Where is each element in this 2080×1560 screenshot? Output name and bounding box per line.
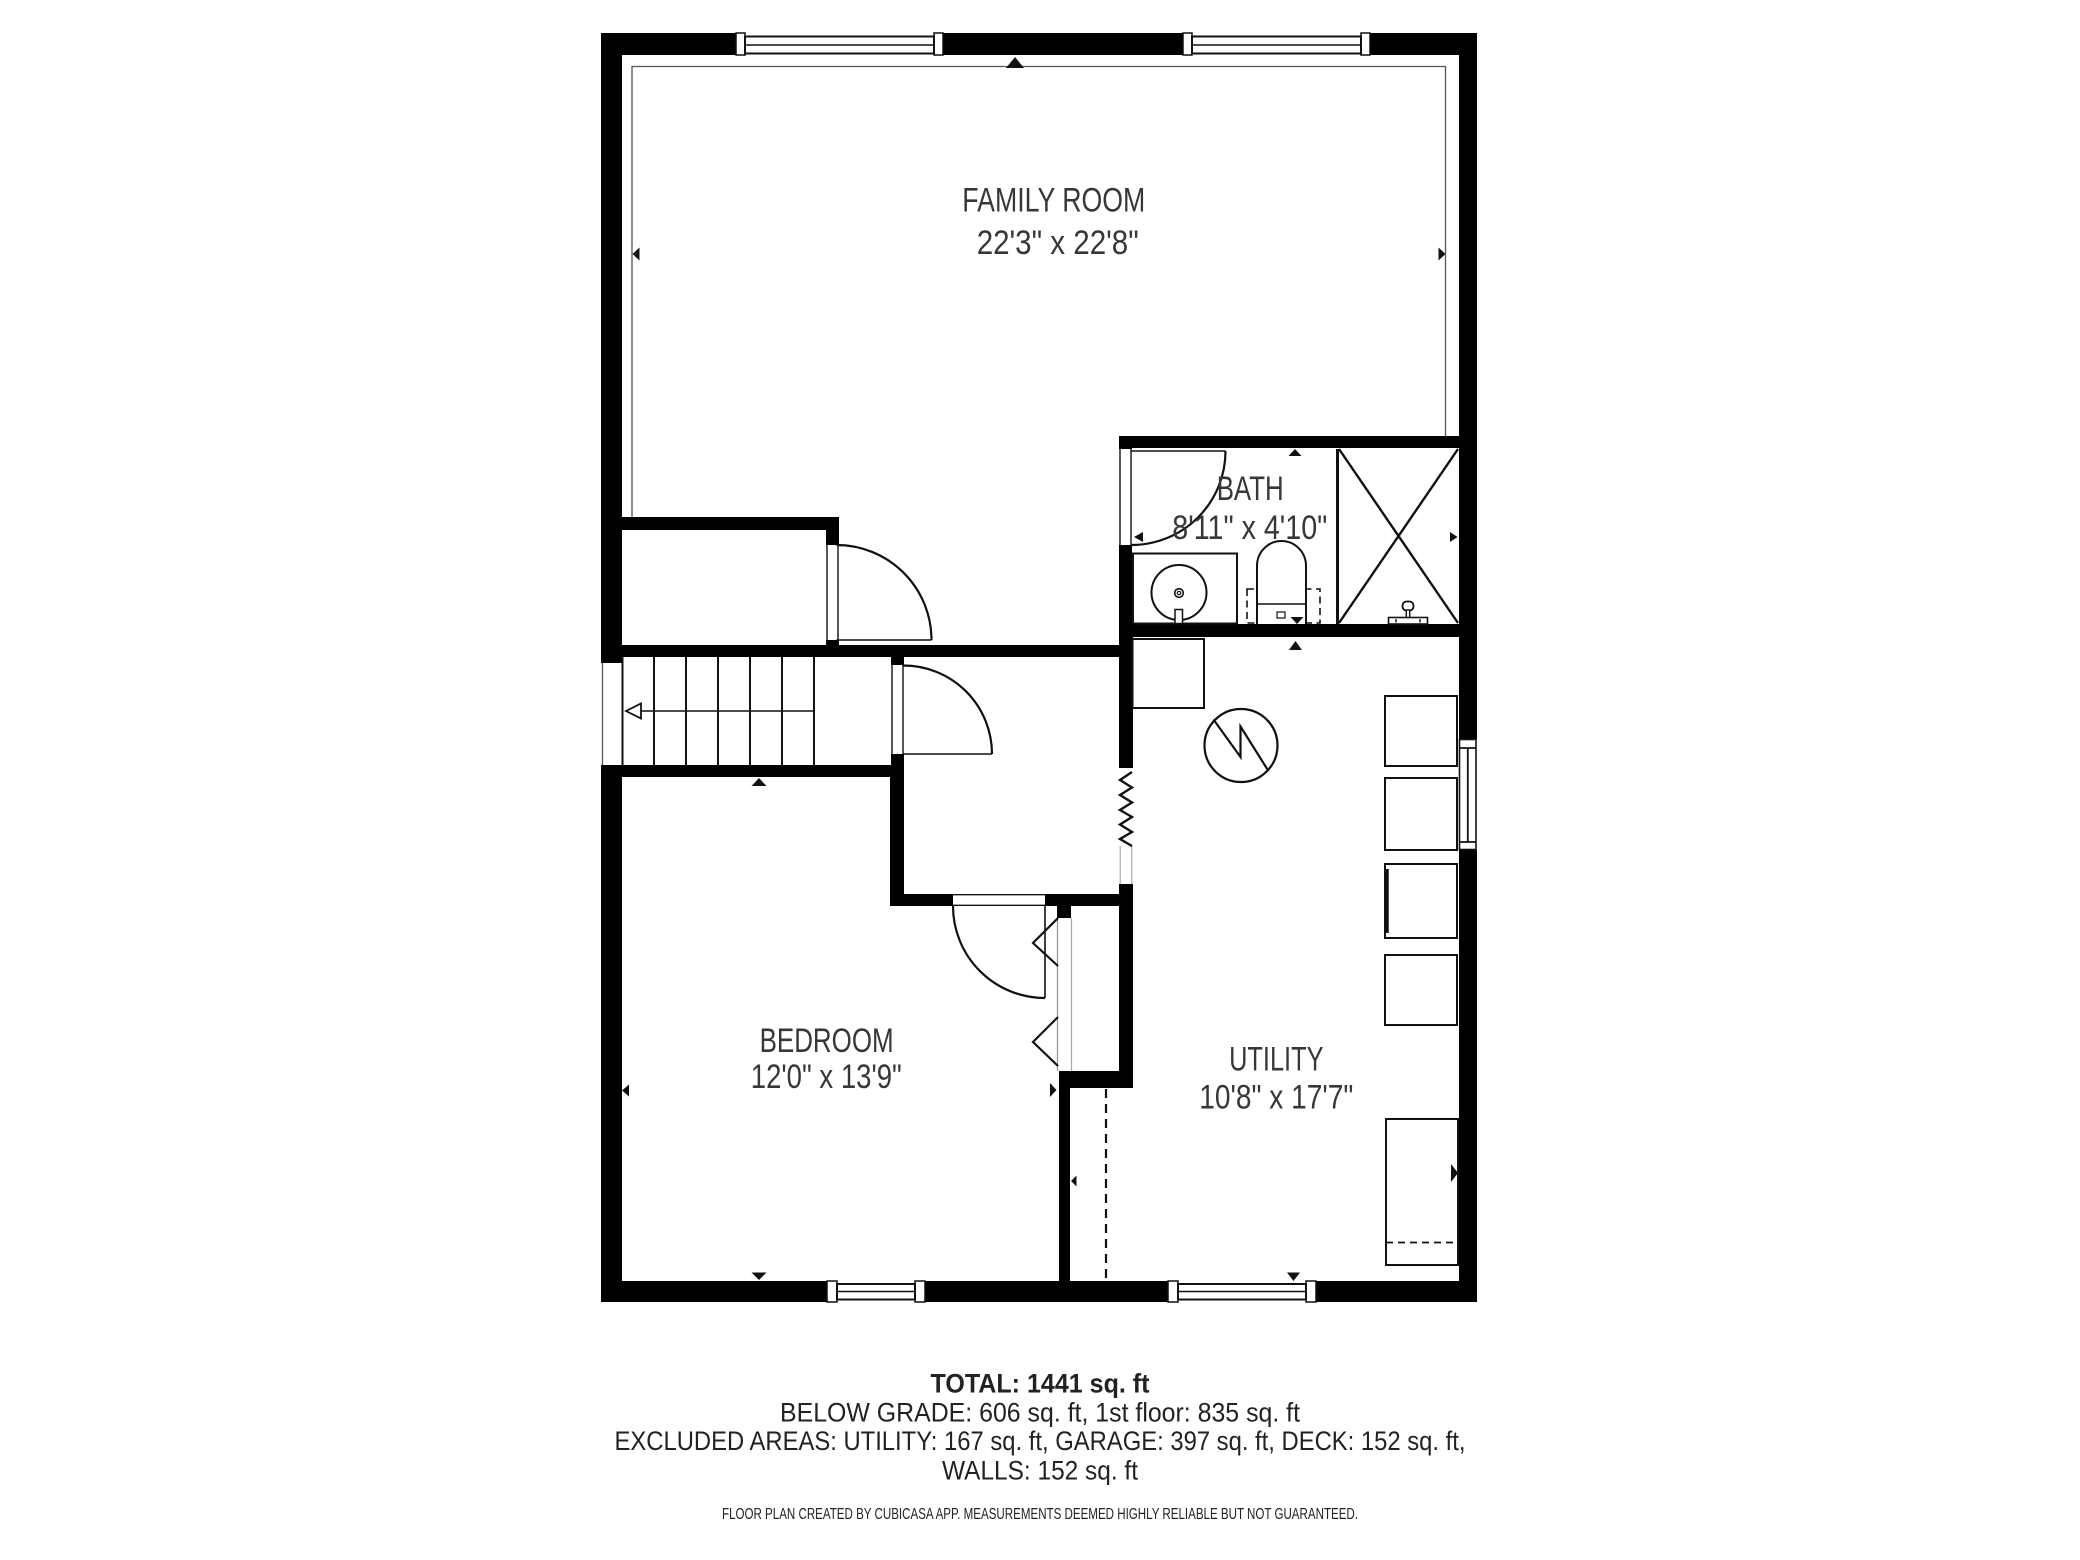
svg-text:WALLS: 152 sq. ft: WALLS: 152 sq. ft xyxy=(942,1456,1138,1486)
svg-text:22'3" x 22'8": 22'3" x 22'8" xyxy=(977,224,1139,262)
svg-text:12'0" x 13'9": 12'0" x 13'9" xyxy=(751,1058,902,1096)
svg-text:BELOW GRADE: 606 sq. ft, 1st f: BELOW GRADE: 606 sq. ft, 1st floor: 835 … xyxy=(780,1397,1300,1427)
svg-text:EXCLUDED AREAS: UTILITY: 167 s: EXCLUDED AREAS: UTILITY: 167 sq. ft, GAR… xyxy=(615,1426,1466,1456)
svg-text:FAMILY ROOM: FAMILY ROOM xyxy=(962,182,1145,220)
svg-text:10'8" x 17'7": 10'8" x 17'7" xyxy=(1199,1078,1353,1116)
svg-text:BEDROOM: BEDROOM xyxy=(760,1022,894,1060)
svg-text:FLOOR PLAN CREATED BY CUBICASA: FLOOR PLAN CREATED BY CUBICASA APP. MEAS… xyxy=(722,1506,1358,1523)
svg-text:BATH: BATH xyxy=(1217,470,1284,508)
svg-text:UTILITY: UTILITY xyxy=(1229,1041,1323,1079)
svg-text:8'11" x 4'10": 8'11" x 4'10" xyxy=(1172,509,1327,547)
svg-text:TOTAL: 1441 sq. ft: TOTAL: 1441 sq. ft xyxy=(931,1368,1150,1398)
